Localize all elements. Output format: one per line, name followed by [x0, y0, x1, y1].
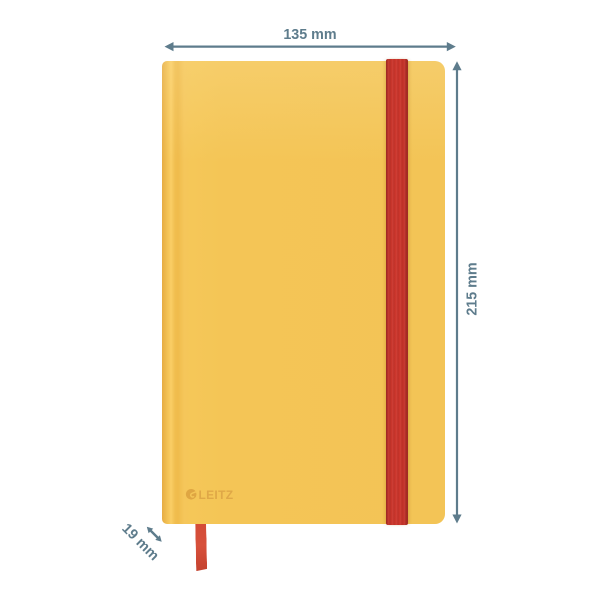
- svg-text:135 mm: 135 mm: [283, 27, 336, 43]
- svg-text:LEITZ: LEITZ: [199, 488, 234, 502]
- svg-text:19 mm: 19 mm: [118, 521, 161, 564]
- svg-text:215 mm: 215 mm: [464, 262, 480, 315]
